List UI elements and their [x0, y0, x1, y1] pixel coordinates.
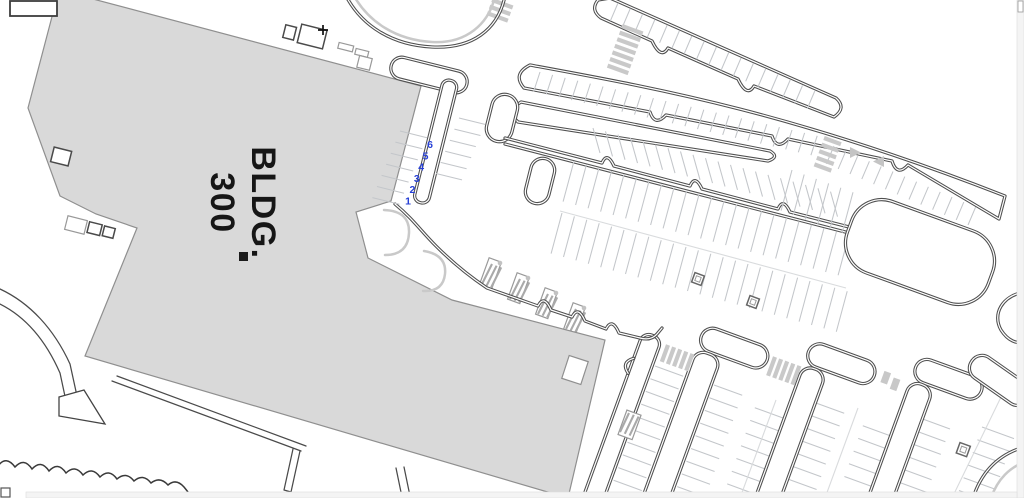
site-plan-svg: BLDG. 300 1 2 3 4 5 6 — [0, 0, 1024, 498]
crosswalk-stem-b — [768, 357, 799, 385]
dock-structure-4 — [102, 226, 115, 238]
loop-island-curb — [837, 191, 1004, 314]
tree-island-capsule-2 — [523, 156, 557, 206]
west-road-line-1 — [0, 289, 77, 396]
parking-lot-upper — [484, 0, 1024, 343]
roof-unit-2 — [283, 25, 297, 40]
crosswalk-top-mid — [608, 26, 643, 73]
site-plan-canvas: BLDG. 300 1 2 3 4 5 6 — [0, 0, 1024, 498]
walkway-arrow-icon — [59, 390, 105, 424]
horizontal-scrollbar[interactable] — [26, 492, 1017, 498]
tree-island-capsule-1 — [484, 92, 521, 145]
stall-number-5: 5 — [423, 150, 429, 162]
stall-number-4: 4 — [418, 162, 424, 174]
corner-marker — [1, 488, 10, 497]
court-canopy-arc-1 — [384, 210, 409, 255]
building-label-line2: 300 — [203, 172, 241, 233]
roof-unit-3 — [357, 55, 373, 70]
dock-structure-2 — [65, 216, 88, 234]
stall-divider-island — [413, 79, 458, 205]
stem-island-c — [728, 365, 826, 498]
stall-fan-corner — [959, 427, 1014, 498]
court-canopy-arc-2 — [423, 251, 445, 291]
stall-number-2: 2 — [409, 184, 415, 196]
accessible-symbol-icon — [526, 276, 531, 281]
building-label-line1: BLDG. — [244, 146, 282, 259]
tree-line-scallops — [0, 461, 188, 492]
corner-road-arc — [973, 447, 1024, 498]
roof-vent-1 — [338, 42, 354, 51]
stall-number-1: 1 — [405, 196, 411, 208]
vertical-scrollbar-thumb[interactable] — [1018, 1, 1023, 12]
crosswalk-stem-a — [662, 345, 693, 371]
walkway-stub — [284, 449, 300, 492]
adjacent-structure — [10, 1, 57, 16]
pavement-dash-2 — [890, 377, 901, 391]
stall-number-6: 6 — [427, 139, 433, 151]
stall-fan-second-row — [551, 213, 847, 332]
accessible-symbol-icon — [498, 261, 503, 266]
stem-islands-group — [564, 262, 986, 498]
accessible-symbol-icon — [554, 291, 559, 296]
dock-structure-3 — [87, 222, 102, 236]
light-post-3 — [956, 443, 970, 457]
vertical-scrollbar[interactable] — [1017, 0, 1024, 498]
west-road-line-2 — [0, 304, 66, 401]
accessible-symbol-icon — [582, 306, 587, 311]
loop-road-inner — [354, 0, 495, 42]
dock-structure-1 — [51, 147, 72, 166]
pavement-dash-1 — [880, 371, 891, 385]
light-post-1 — [692, 273, 705, 286]
stall-number-3: 3 — [414, 173, 420, 185]
light-post-2 — [747, 296, 760, 309]
stem-island-d — [836, 380, 934, 498]
aisle-centerline-2 — [825, 408, 858, 498]
